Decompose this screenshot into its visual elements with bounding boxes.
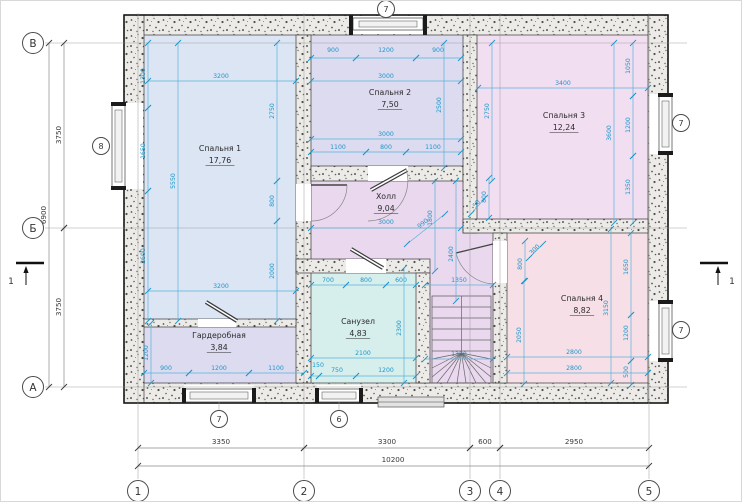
dim-text: 2800 [566, 349, 582, 356]
dim-text: 3300 [378, 437, 397, 446]
opening-bedroom1-door [296, 184, 311, 221]
axis-bubble-label: 3 [467, 486, 474, 498]
room-name: Спальня 3 [543, 111, 585, 120]
dim-text: 900 [327, 47, 339, 54]
axis-bubble-label: А [29, 382, 37, 394]
window-cap [252, 388, 256, 403]
section-label: 1 [729, 277, 735, 287]
dim-text: 2750 [269, 103, 276, 119]
dim-text: 900 [160, 365, 172, 372]
dim-text: 800 [380, 144, 392, 151]
dim-text: 2100 [355, 350, 371, 357]
window-cap [658, 358, 673, 362]
window-cap [658, 300, 673, 304]
room-area: 9,04 [377, 204, 394, 213]
dim-text: 600 [395, 277, 407, 284]
window-top-cap [423, 15, 427, 35]
window-bottom-left-frame [190, 392, 248, 399]
window-bottom-center-frame [322, 392, 356, 399]
window-right-top-frame [662, 101, 669, 147]
axis-bubble-label: Б [29, 223, 36, 235]
floor-plan-canvas: 1300165026003200555027508002000320012009… [0, 0, 742, 502]
window-marker-label: 7 [216, 415, 221, 424]
section-arrowhead [715, 266, 720, 273]
dim-text: 3350 [212, 437, 231, 446]
dim-text: 1100 [330, 144, 346, 151]
dim-text: 3000 [378, 219, 394, 226]
wall-bedroom3-south [463, 219, 648, 233]
axis-bubble-label: 1 [135, 486, 142, 498]
section-label: 1 [8, 277, 14, 287]
dim-text: 2300 [396, 320, 403, 336]
dim-text: 1650 [623, 259, 630, 275]
window-left-frame [115, 110, 122, 182]
dim-text: 800 [360, 277, 372, 284]
dim-text: 900 [432, 47, 444, 54]
room-area: 12,24 [553, 123, 575, 132]
dim-text: 3000 [378, 73, 394, 80]
dim-text: 3750 [54, 297, 63, 316]
dim-text: 1200 [623, 325, 630, 341]
room-name: Гардеробная [192, 331, 246, 340]
dim-text: 1200 [211, 365, 227, 372]
dim-text: 2500 [436, 97, 443, 113]
room-name: Спальня 4 [561, 294, 603, 303]
dim-text: 2800 [566, 365, 582, 372]
dim-text: 1100 [425, 144, 441, 151]
window-marker-label: 6 [336, 415, 341, 424]
window-marker-label: 7 [678, 119, 683, 128]
window-marker-label: 8 [98, 142, 103, 151]
axis-bubble-label: 5 [646, 486, 653, 498]
window-cap [315, 388, 319, 403]
floor-plan-svg: 1300165026003200555027508002000320012009… [1, 1, 742, 502]
room-area: 4,83 [349, 329, 366, 338]
window-left-cap [111, 186, 126, 190]
dim-text: 1300 [140, 68, 147, 84]
room-area: 3,84 [210, 343, 227, 352]
wall-bathroom-east [416, 273, 430, 383]
window-marker-label: 7 [383, 5, 388, 14]
room-name: Спальня 1 [199, 144, 241, 153]
dim-text: 600 [478, 437, 492, 446]
dim-text: 1650 [140, 143, 147, 159]
dim-text: 3000 [378, 131, 394, 138]
dim-text: 3400 [555, 80, 571, 87]
window-left-cap [111, 102, 126, 106]
section-arrowhead [23, 266, 28, 273]
window-right-bottom-frame [662, 308, 669, 354]
dim-text: 150 [312, 362, 324, 369]
dim-text: 1200 [378, 367, 394, 374]
dim-text: 3200 [213, 73, 229, 80]
window-cap [658, 151, 673, 155]
room-name: Спальня 2 [369, 88, 411, 97]
window-cap [658, 93, 673, 97]
dim-text: 1350 [625, 179, 632, 195]
room-name: Санузел [341, 317, 375, 326]
dim-text: 2050 [516, 327, 523, 343]
room-area: 8,82 [573, 306, 590, 315]
dim-text: 1200 [143, 345, 150, 361]
dim-text: 500 [623, 366, 630, 378]
dim-text: 800 [269, 195, 276, 207]
room-area: 7,50 [381, 100, 398, 109]
dim-text: 2000 [269, 263, 276, 279]
axis-bubble-label: 2 [301, 486, 308, 498]
dim-text: 3750 [54, 125, 63, 144]
window-marker-label: 7 [678, 326, 683, 335]
dim-text: 2950 [565, 437, 584, 446]
dim-text: 1350 [451, 277, 467, 284]
axis-bubble-label: В [29, 38, 36, 50]
dim-text: 3600 [606, 125, 613, 141]
dim-text: 2750 [484, 103, 491, 119]
window-top-frame [359, 21, 417, 27]
dim-text: 800 [481, 191, 488, 203]
dim-text: 800 [517, 258, 524, 270]
dim-text: 2400 [448, 246, 455, 262]
dim-text: 10200 [382, 455, 405, 464]
dim-text: 750 [331, 367, 343, 374]
opening-wardrobe-door [198, 319, 236, 327]
window-top-cap [349, 15, 353, 35]
dim-text: 5550 [170, 173, 177, 189]
dim-text: 1350 [451, 351, 467, 358]
dim-text: 1050 [625, 58, 632, 74]
dim-text: 2600 [140, 248, 147, 264]
dim-text: 1200 [625, 117, 632, 133]
dim-text: 1100 [268, 365, 284, 372]
dim-text: 3200 [213, 283, 229, 290]
window-cap [359, 388, 363, 403]
room-area: 17,76 [209, 156, 231, 165]
axis-bubble-label: 4 [497, 486, 504, 498]
dim-text: 3150 [603, 300, 610, 316]
room-name: Холл [376, 192, 396, 201]
window-cap [182, 388, 186, 403]
dim-text: 700 [322, 277, 334, 284]
dim-text: 1200 [378, 47, 394, 54]
